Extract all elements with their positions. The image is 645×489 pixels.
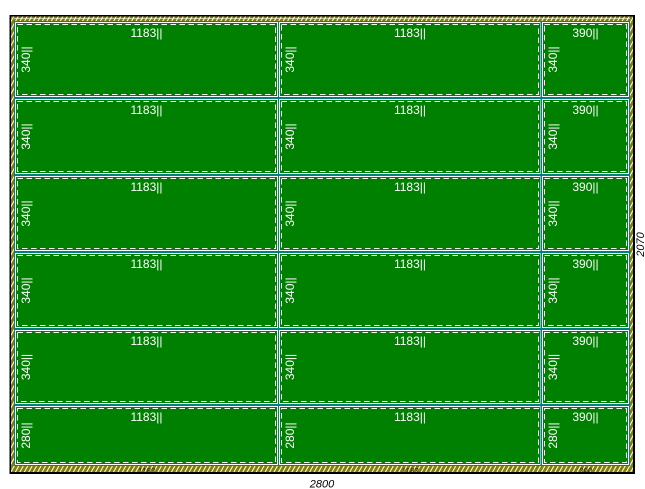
svg-text:2070: 2070	[635, 231, 645, 257]
svg-text:280||: 280||	[546, 422, 560, 448]
svg-text:1183||: 1183||	[394, 334, 426, 348]
svg-text:340||: 340||	[19, 354, 33, 380]
svg-text:340||: 340||	[19, 123, 33, 149]
svg-text:390||: 390||	[572, 410, 598, 424]
svg-text:340||: 340||	[19, 46, 33, 72]
svg-text:1183||: 1183||	[394, 257, 426, 271]
svg-text:390: 390	[579, 467, 593, 476]
svg-text:1183||: 1183||	[130, 410, 162, 424]
svg-text:1183||: 1183||	[130, 180, 162, 194]
svg-text:390||: 390||	[572, 180, 598, 194]
svg-text:390||: 390||	[572, 103, 598, 117]
svg-text:280||: 280||	[19, 422, 33, 448]
svg-text:280||: 280||	[283, 422, 297, 448]
svg-text:390||: 390||	[572, 334, 598, 348]
svg-text:340||: 340||	[546, 123, 560, 149]
svg-text:1183||: 1183||	[394, 410, 426, 424]
svg-text:1183: 1183	[401, 467, 419, 476]
svg-text:2800: 2800	[309, 479, 335, 489]
svg-text:340||: 340||	[546, 277, 560, 303]
svg-text:1183: 1183	[138, 467, 156, 476]
svg-text:340||: 340||	[546, 354, 560, 380]
svg-text:1183||: 1183||	[130, 257, 162, 271]
svg-text:340||: 340||	[283, 277, 297, 303]
svg-text:340||: 340||	[283, 354, 297, 380]
svg-text:1183||: 1183||	[130, 334, 162, 348]
svg-text:340||: 340||	[19, 277, 33, 303]
svg-text:340||: 340||	[283, 200, 297, 226]
svg-text:340||: 340||	[546, 46, 560, 72]
svg-text:1183||: 1183||	[394, 103, 426, 117]
svg-text:340||: 340||	[283, 46, 297, 72]
svg-text:1183||: 1183||	[130, 26, 162, 40]
svg-text:390||: 390||	[572, 257, 598, 271]
svg-text:390||: 390||	[572, 26, 598, 40]
svg-text:1183||: 1183||	[130, 103, 162, 117]
svg-text:1183||: 1183||	[394, 180, 426, 194]
svg-text:1183||: 1183||	[394, 26, 426, 40]
svg-text:340||: 340||	[283, 123, 297, 149]
svg-text:340||: 340||	[19, 200, 33, 226]
svg-text:340||: 340||	[546, 200, 560, 226]
